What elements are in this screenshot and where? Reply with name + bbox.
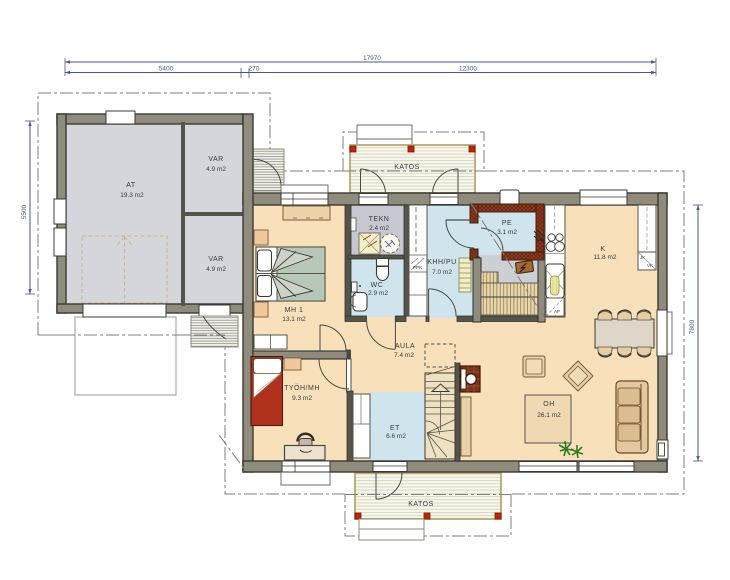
svg-text:K: K <box>600 246 605 253</box>
svg-text:TEKN: TEKN <box>369 216 390 223</box>
svg-text:MH 1: MH 1 <box>285 307 304 314</box>
svg-text:12300: 12300 <box>459 66 477 73</box>
svg-text:13.1 m2: 13.1 m2 <box>282 316 306 323</box>
svg-text:4.9 m2: 4.9 m2 <box>206 166 226 173</box>
svg-text:26.1 m2: 26.1 m2 <box>537 412 561 419</box>
svg-text:VAR: VAR <box>208 156 223 163</box>
svg-text:5500: 5500 <box>21 204 28 219</box>
svg-text:7.4 m2: 7.4 m2 <box>394 352 414 359</box>
svg-text:AP: AP <box>554 309 560 314</box>
svg-text:17970: 17970 <box>363 55 381 62</box>
svg-text:9.3 m2: 9.3 m2 <box>292 395 312 402</box>
svg-text:TYÖH/MH: TYÖH/MH <box>284 384 320 392</box>
svg-text:11.8 m2: 11.8 m2 <box>593 254 616 261</box>
svg-text:OH: OH <box>543 401 555 408</box>
svg-text:KHH/PU: KHH/PU <box>427 259 456 266</box>
svg-text:WC: WC <box>371 282 384 289</box>
svg-text:7800: 7800 <box>689 319 696 334</box>
svg-text:3.1 m2: 3.1 m2 <box>497 229 517 236</box>
svg-text:19.3 m2: 19.3 m2 <box>120 192 144 199</box>
svg-text:AT: AT <box>126 182 136 189</box>
svg-text:PE: PE <box>502 220 512 227</box>
svg-text:VK: VK <box>647 263 653 268</box>
svg-text:2.9 m2: 2.9 m2 <box>368 290 388 297</box>
svg-text:ET: ET <box>390 425 400 432</box>
svg-text:2.4 m2: 2.4 m2 <box>369 225 389 232</box>
svg-text:5400: 5400 <box>159 66 174 73</box>
svg-text:AULA: AULA <box>395 343 415 350</box>
svg-text:7.0 m2: 7.0 m2 <box>432 269 452 276</box>
svg-text:PPK: PPK <box>413 265 422 270</box>
svg-text:VAR: VAR <box>208 256 223 263</box>
svg-text:270: 270 <box>249 66 260 73</box>
svg-text:KATOS: KATOS <box>394 164 420 171</box>
svg-text:JK: JK <box>640 255 645 260</box>
svg-text:4.9 m2: 4.9 m2 <box>206 266 226 273</box>
svg-text:6.6 m2: 6.6 m2 <box>386 433 406 440</box>
svg-text:KATOS: KATOS <box>408 501 434 508</box>
